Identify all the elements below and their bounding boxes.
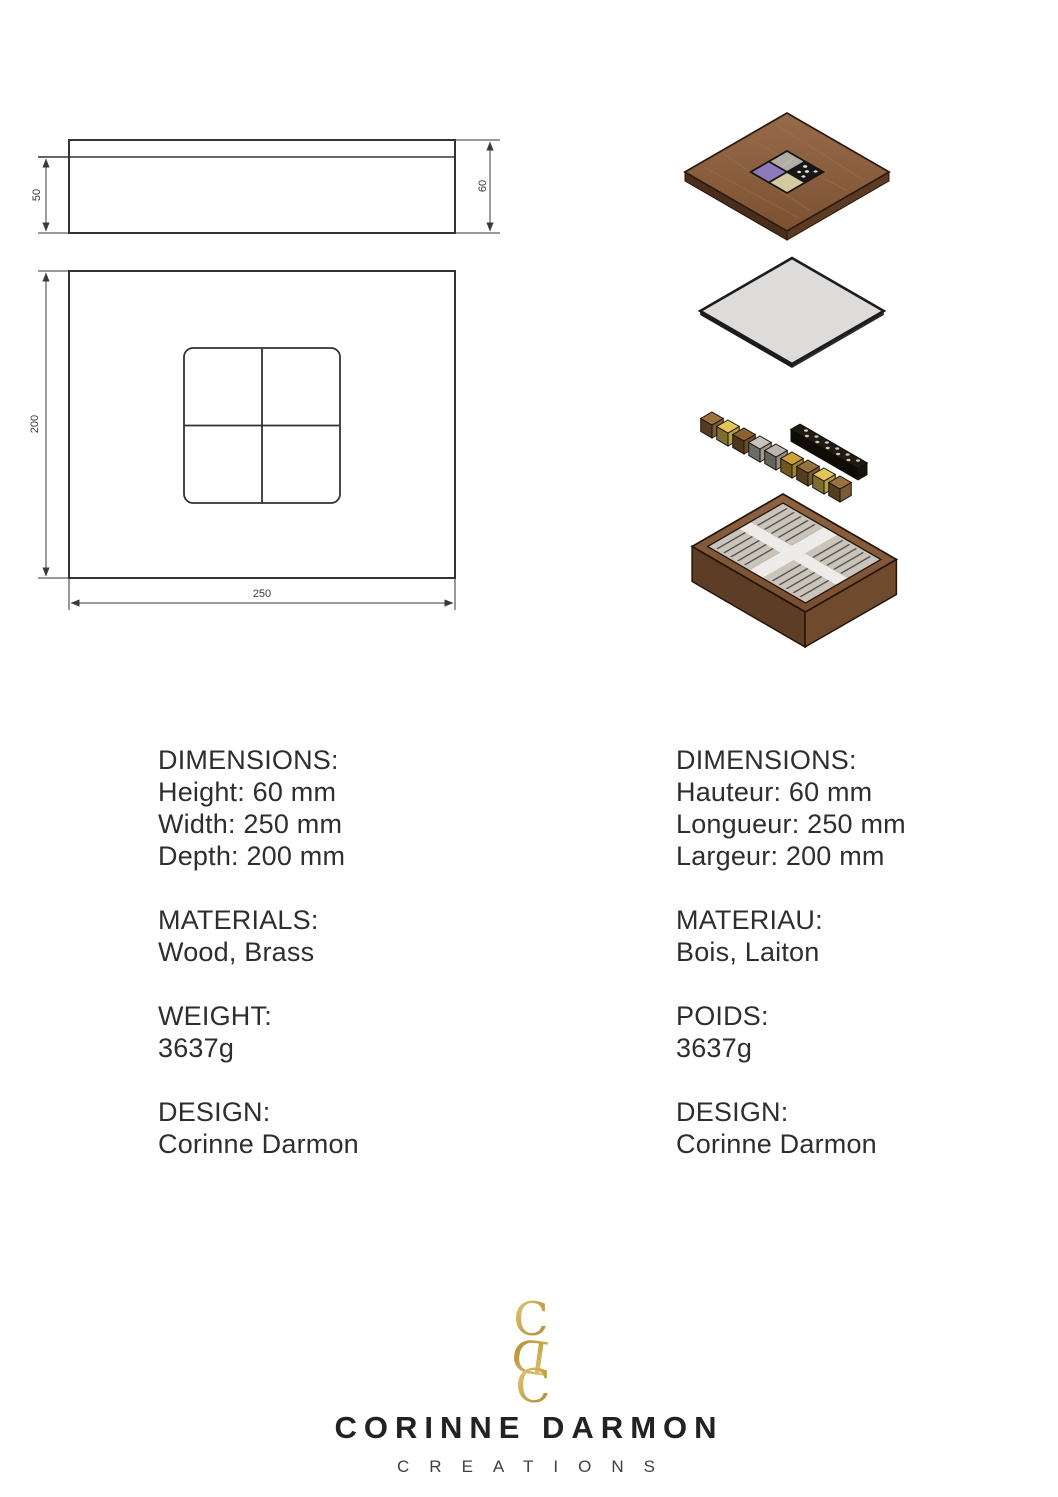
weight-title-en: WEIGHT:	[158, 1000, 488, 1032]
design-title-en: DESIGN:	[158, 1096, 488, 1128]
design-title-fr: DESIGN:	[676, 1096, 1006, 1128]
materials-title-fr: MATERIAU:	[676, 904, 1006, 936]
dim-60-label: 60	[477, 180, 489, 192]
dim-50-label: 50	[31, 189, 43, 201]
dimensions-block-fr: DIMENSIONS: Hauteur: 60 mm Longueur: 250…	[676, 744, 1006, 872]
spec-column-fr: DIMENSIONS: Hauteur: 60 mm Longueur: 250…	[676, 744, 1006, 1192]
dimensions-title-en: DIMENSIONS:	[158, 744, 488, 776]
panel-part	[700, 258, 884, 368]
materials-value-en: Wood, Brass	[158, 936, 488, 968]
design-value-en: Corinne Darmon	[158, 1128, 488, 1160]
width-line-fr: Longueur: 250 mm	[676, 808, 1006, 840]
spec-sheet: 50 60 200 250	[0, 0, 1058, 1497]
exploded-view	[630, 100, 950, 660]
monogram-c-bottom-icon: C	[515, 1359, 550, 1407]
side-view-outline	[69, 140, 455, 233]
height-line-en: Height: 60 mm	[158, 776, 488, 808]
materials-value-fr: Bois, Laiton	[676, 936, 1006, 968]
design-block-en: DESIGN: Corinne Darmon	[158, 1096, 488, 1160]
weight-title-fr: POIDS:	[676, 1000, 1006, 1032]
spec-column-en: DIMENSIONS: Height: 60 mm Width: 250 mm …	[158, 744, 488, 1192]
depth-line-fr: Largeur: 200 mm	[676, 840, 1006, 872]
dimensions-title-fr: DIMENSIONS:	[676, 744, 1006, 776]
design-block-fr: DESIGN: Corinne Darmon	[676, 1096, 1006, 1160]
technical-drawing: 50 60 200 250	[0, 100, 560, 630]
design-value-fr: Corinne Darmon	[676, 1128, 1006, 1160]
brand-name: CORINNE DARMON	[0, 1410, 1058, 1446]
weight-value-fr: 3637g	[676, 1032, 1006, 1064]
dim-200-label: 200	[29, 415, 41, 433]
materials-block-fr: MATERIAU: Bois, Laiton	[676, 904, 1006, 968]
materials-block-en: MATERIALS: Wood, Brass	[158, 904, 488, 968]
depth-line-en: Depth: 200 mm	[158, 840, 488, 872]
weight-block-en: WEIGHT: 3637g	[158, 1000, 488, 1064]
height-line-fr: Hauteur: 60 mm	[676, 776, 1006, 808]
brand-tagline: CREATIONS	[14, 1457, 1058, 1477]
weight-value-en: 3637g	[158, 1032, 488, 1064]
lid-part	[685, 113, 889, 240]
box-part	[692, 494, 896, 647]
dim-250-label: 250	[253, 588, 271, 600]
panel-top-face	[700, 258, 884, 364]
width-line-en: Width: 250 mm	[158, 808, 488, 840]
materials-title-en: MATERIALS:	[158, 904, 488, 936]
brand-logo: C D C	[487, 1292, 577, 1407]
weight-block-fr: POIDS: 3637g	[676, 1000, 1006, 1064]
dimensions-block-en: DIMENSIONS: Height: 60 mm Width: 250 mm …	[158, 744, 488, 872]
